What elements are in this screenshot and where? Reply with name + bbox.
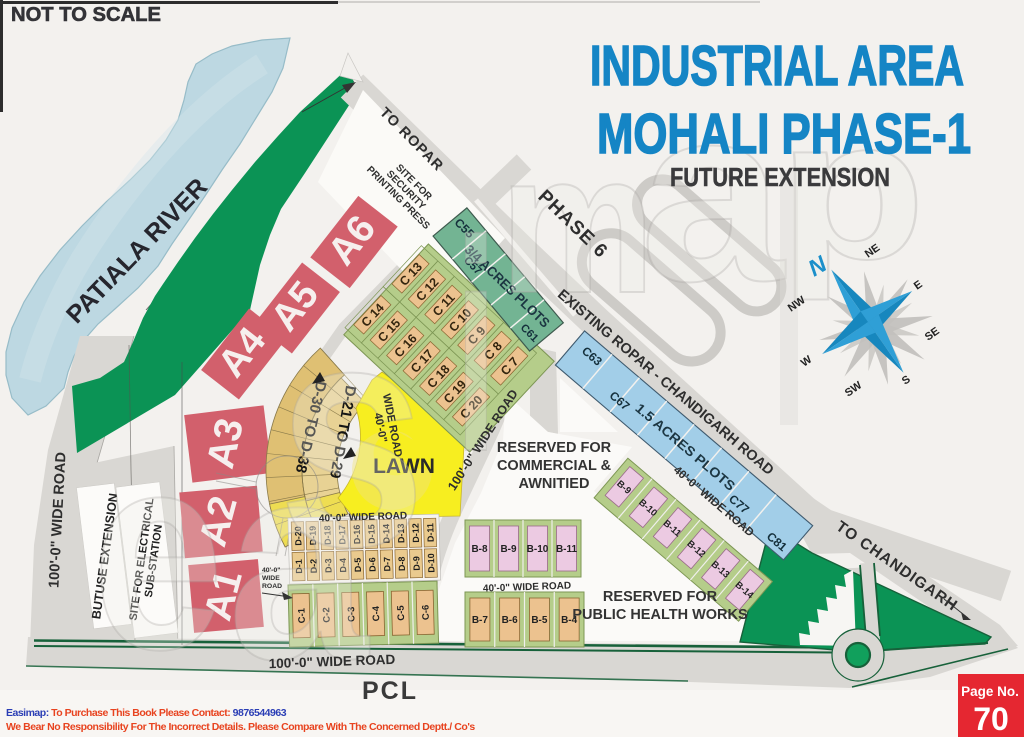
svg-text:COMMERCIAL &: COMMERCIAL & bbox=[497, 458, 612, 474]
svg-text:70: 70 bbox=[973, 701, 1009, 737]
svg-text:B-8: B-8 bbox=[471, 544, 488, 555]
svg-text:RESERVED FOR: RESERVED FOR bbox=[603, 589, 718, 605]
svg-text:FUTURE EXTENSION: FUTURE EXTENSION bbox=[670, 162, 890, 192]
svg-text:NOT TO SCALE: NOT TO SCALE bbox=[11, 4, 161, 26]
svg-text:Easimap: To Purchase This Book: Easimap: To Purchase This Book Please Co… bbox=[6, 707, 287, 719]
svg-text:D-11: D-11 bbox=[425, 523, 435, 542]
svg-text:MOHALI PHASE-1: MOHALI PHASE-1 bbox=[597, 102, 971, 166]
svg-text:PUBLIC HEALTH WORKS: PUBLIC HEALTH WORKS bbox=[572, 607, 748, 623]
svg-text:B-10: B-10 bbox=[527, 544, 549, 555]
svg-text:B-5: B-5 bbox=[531, 615, 548, 626]
svg-text:INDUSTRIAL AREA: INDUSTRIAL AREA bbox=[590, 34, 964, 98]
svg-text:e: e bbox=[92, 396, 224, 708]
svg-text:Page No.: Page No. bbox=[961, 684, 1019, 699]
svg-text:PCL: PCL bbox=[362, 677, 418, 705]
svg-text:40'-0": 40'-0" bbox=[262, 567, 280, 574]
svg-text:s: s bbox=[278, 255, 426, 613]
svg-text:ROAD: ROAD bbox=[262, 583, 282, 590]
svg-text:AWNITIED: AWNITIED bbox=[519, 476, 590, 492]
svg-text:We Bear No Responsibility For: We Bear No Responsibility For The Incorr… bbox=[6, 721, 475, 733]
svg-text:B-7: B-7 bbox=[472, 615, 489, 626]
svg-text:B-9: B-9 bbox=[500, 544, 517, 555]
svg-text:B-11: B-11 bbox=[556, 544, 578, 555]
svg-text:RESERVED FOR: RESERVED FOR bbox=[497, 440, 612, 456]
svg-text:WIDE: WIDE bbox=[262, 575, 280, 582]
svg-text:B-6: B-6 bbox=[502, 615, 519, 626]
svg-text:D-10: D-10 bbox=[426, 553, 437, 573]
